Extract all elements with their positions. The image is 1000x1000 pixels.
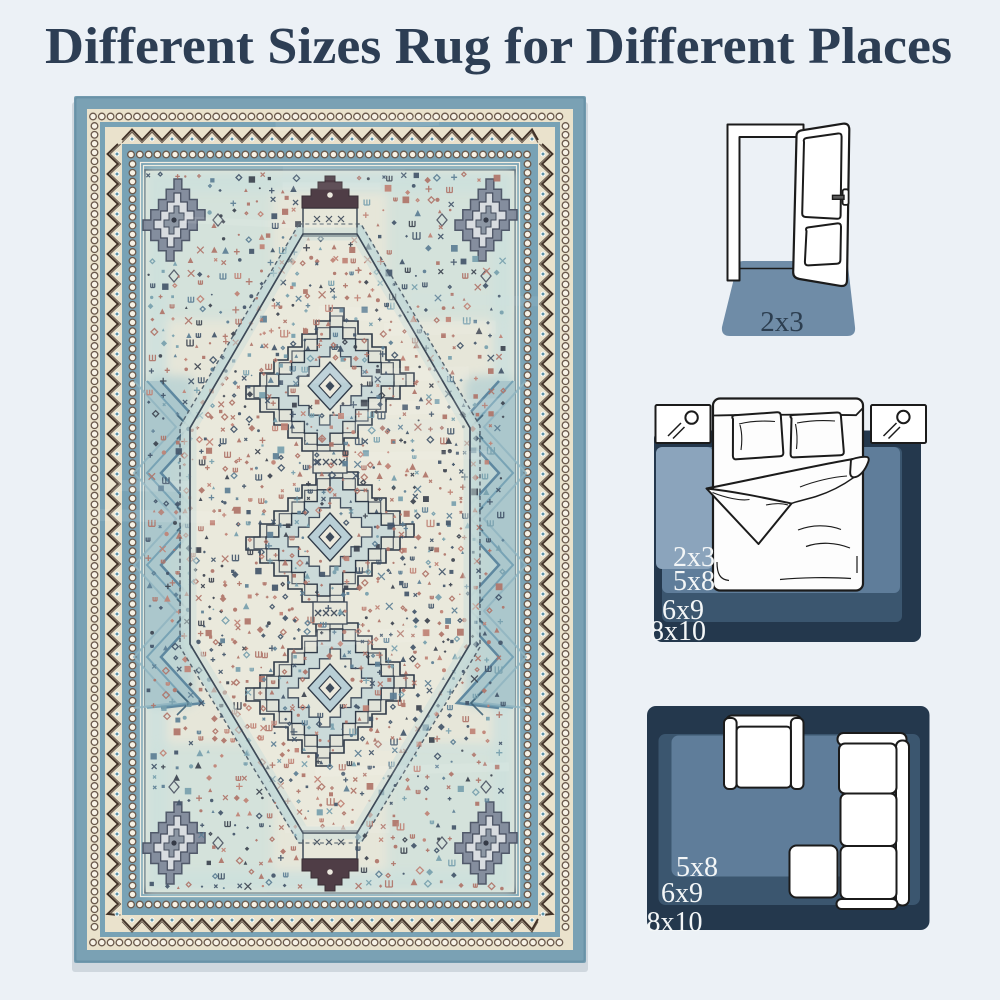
svg-text:8x10: 8x10 xyxy=(650,616,706,647)
svg-text:2x3: 2x3 xyxy=(760,306,804,338)
svg-text:5x8: 5x8 xyxy=(673,566,715,597)
svg-text:6x9: 6x9 xyxy=(661,878,703,909)
svg-text:8x10: 8x10 xyxy=(647,907,703,938)
svg-text:Different Sizes Rug for Differ: Different Sizes Rug for Different Places xyxy=(45,18,952,75)
